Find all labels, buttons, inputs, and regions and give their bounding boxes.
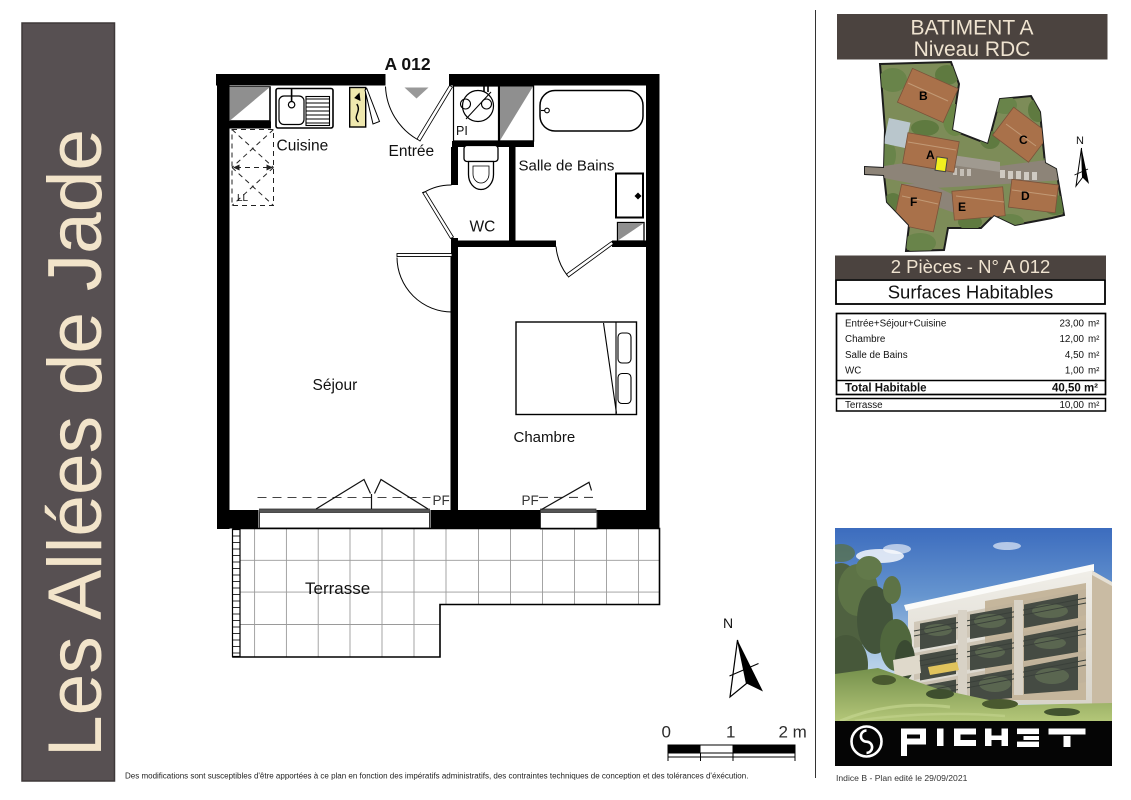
svg-text:m²: m² [1088, 334, 1100, 345]
svg-text:1,00: 1,00 [1065, 366, 1085, 377]
svg-text:Salle de Bains: Salle de Bains [845, 350, 908, 361]
svg-text:Terrasse: Terrasse [845, 400, 883, 411]
svg-text:1: 1 [726, 723, 735, 742]
svg-text:PF: PF [522, 493, 539, 508]
svg-text:A: A [926, 148, 935, 162]
svg-text:F: F [910, 195, 917, 209]
svg-text:4,50: 4,50 [1065, 350, 1085, 361]
svg-text:B: B [919, 89, 928, 103]
svg-text:Indice B - Plan edité le 29/09: Indice B - Plan edité le 29/09/2021 [836, 773, 968, 783]
svg-text:Total Habitable: Total Habitable [845, 383, 927, 395]
svg-text:Chambre: Chambre [845, 334, 886, 345]
svg-text:BATIMENT A: BATIMENT A [911, 17, 1034, 40]
svg-text:LL: LL [237, 193, 249, 204]
svg-text:C: C [1019, 133, 1028, 147]
svg-text:Entrée: Entrée [389, 143, 435, 160]
svg-text:Chambre: Chambre [514, 429, 576, 446]
svg-text:Niveau RDC: Niveau RDC [914, 38, 1031, 61]
svg-text:m²: m² [1088, 366, 1100, 377]
svg-text:WC: WC [845, 366, 861, 377]
svg-text:Surfaces Habitables: Surfaces Habitables [888, 282, 1054, 303]
svg-text:E: E [958, 200, 966, 214]
svg-text:Cuisine: Cuisine [277, 138, 329, 155]
svg-text:m²: m² [1088, 400, 1100, 411]
svg-text:m²: m² [1088, 350, 1100, 361]
svg-text:m²: m² [1088, 319, 1100, 330]
svg-text:D: D [1021, 189, 1030, 203]
svg-text:N: N [1076, 135, 1084, 147]
svg-text:A 012: A 012 [385, 54, 431, 74]
svg-text:2 m: 2 m [779, 723, 807, 742]
svg-text:Des modifications sont suscept: Des modifications sont susceptibles d'êt… [125, 772, 748, 781]
svg-text:12,00: 12,00 [1059, 334, 1084, 345]
svg-text:Salle de Bains: Salle de Bains [519, 158, 615, 175]
svg-text:Terrasse: Terrasse [305, 579, 370, 598]
svg-text:N: N [723, 615, 733, 631]
svg-text:23,00: 23,00 [1059, 319, 1084, 330]
svg-text:Entrée+Séjour+Cuisine: Entrée+Séjour+Cuisine [845, 319, 947, 330]
svg-text:Les Allées de Jade: Les Allées de Jade [33, 129, 118, 757]
svg-text:Séjour: Séjour [313, 377, 358, 394]
svg-text:PF: PF [433, 493, 450, 508]
svg-text:PI: PI [456, 124, 468, 138]
svg-text:2 Pièces - N° A 012: 2 Pièces - N° A 012 [891, 256, 1051, 277]
svg-text:WC: WC [470, 219, 496, 236]
svg-text:10,00: 10,00 [1059, 400, 1084, 411]
svg-text:0: 0 [662, 723, 671, 742]
svg-text:40,50 m²: 40,50 m² [1052, 383, 1098, 395]
